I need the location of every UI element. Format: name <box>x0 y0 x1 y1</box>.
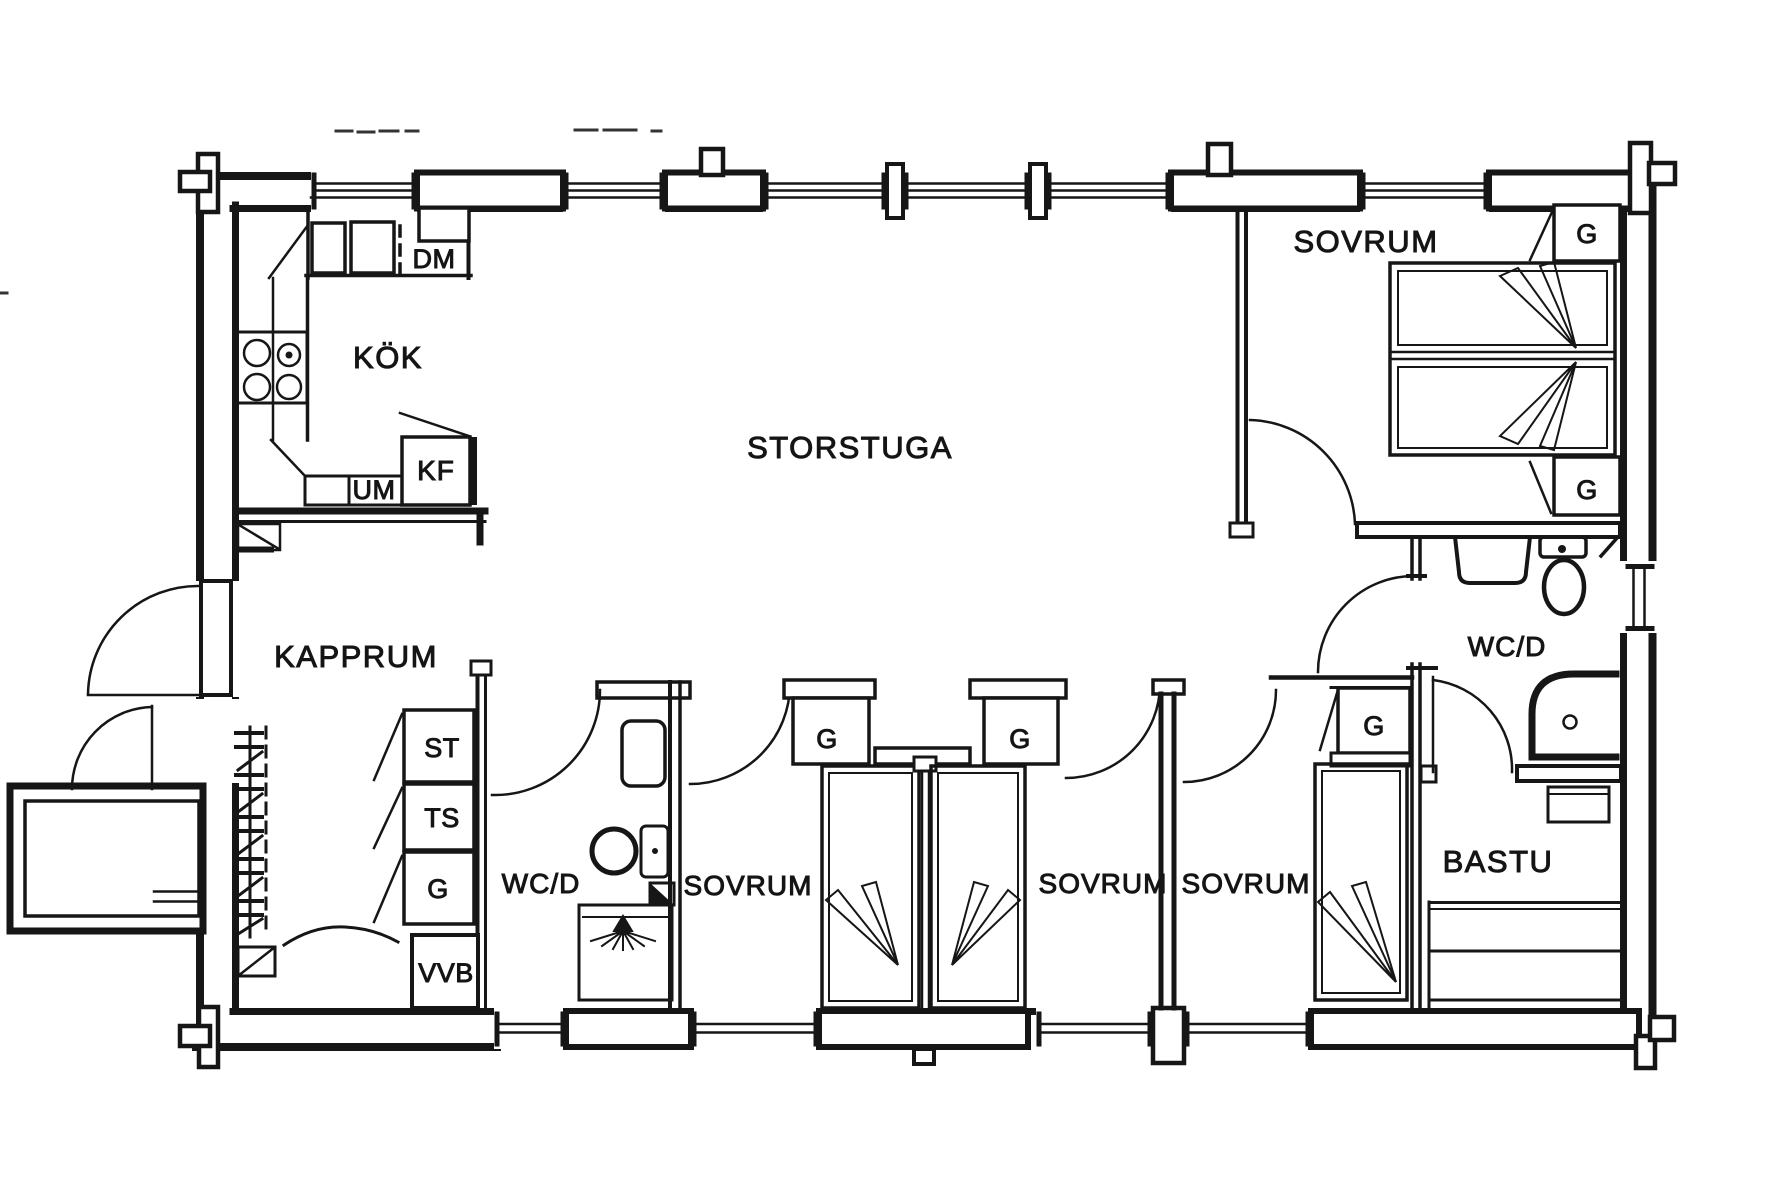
svg-text:SOVRUM: SOVRUM <box>1039 868 1168 899</box>
svg-text:KF: KF <box>417 455 455 486</box>
svg-text:WC/D: WC/D <box>502 868 581 899</box>
svg-text:G: G <box>1576 475 1598 505</box>
svg-text:BASTU: BASTU <box>1443 844 1554 879</box>
svg-text:KÖK: KÖK <box>353 340 423 375</box>
svg-text:SOVRUM: SOVRUM <box>1293 224 1438 259</box>
svg-text:TS: TS <box>424 803 460 833</box>
svg-text:SOVRUM: SOVRUM <box>1182 868 1311 899</box>
svg-text:WC/D: WC/D <box>1468 631 1547 662</box>
svg-text:G: G <box>427 874 449 904</box>
svg-text:G: G <box>816 724 838 754</box>
svg-text:G: G <box>1576 219 1598 249</box>
svg-text:KAPPRUM: KAPPRUM <box>274 639 438 674</box>
svg-text:ST: ST <box>424 733 460 763</box>
svg-text:VVB: VVB <box>418 958 474 988</box>
svg-text:G: G <box>1363 711 1385 741</box>
svg-text:SOVRUM: SOVRUM <box>684 870 813 901</box>
svg-text:UM: UM <box>353 475 396 505</box>
svg-text:DM: DM <box>413 244 456 274</box>
svg-text:STORSTUGA: STORSTUGA <box>747 430 953 465</box>
svg-text:G: G <box>1009 724 1031 754</box>
